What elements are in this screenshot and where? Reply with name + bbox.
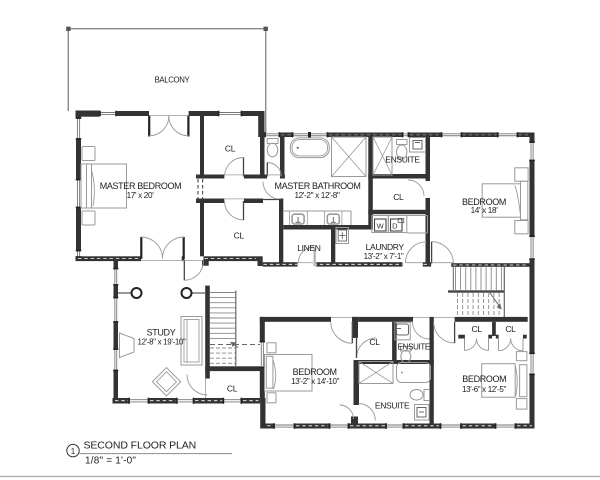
svg-text:12'-2" x 12'-8": 12'-2" x 12'-8" (294, 191, 340, 200)
svg-text:ENSUITE: ENSUITE (375, 401, 410, 411)
svg-text:ENSUITE: ENSUITE (398, 343, 430, 352)
svg-text:BEDROOM: BEDROOM (293, 367, 337, 377)
svg-text:CL: CL (225, 144, 236, 154)
svg-text:CL: CL (393, 192, 404, 202)
svg-text:17' x 20': 17' x 20' (127, 191, 155, 200)
svg-text:13'-2" x 14'-10": 13'-2" x 14'-10" (291, 377, 340, 386)
svg-text:SECOND FLOOR PLAN: SECOND FLOOR PLAN (84, 440, 197, 452)
svg-text:13'-6" x 12'-5": 13'-6" x 12'-5" (462, 385, 506, 394)
svg-text:CL: CL (234, 231, 245, 241)
svg-text:W: W (377, 222, 385, 231)
svg-text:LINEN: LINEN (297, 243, 320, 253)
svg-text:13'-2" x 7'-1": 13'-2" x 7'-1" (364, 252, 404, 261)
svg-text:MASTER BATHROOM: MASTER BATHROOM (274, 181, 360, 191)
svg-text:STUDY: STUDY (147, 328, 176, 338)
svg-text:CL: CL (472, 324, 483, 334)
svg-text:12'-8" x 19'-10": 12'-8" x 19'-10" (137, 338, 186, 347)
svg-text:1: 1 (71, 446, 76, 456)
svg-text:CL: CL (227, 384, 238, 394)
svg-text:CL: CL (369, 337, 380, 347)
svg-text:ENSUITE: ENSUITE (385, 155, 420, 165)
svg-text:MASTER BEDROOM: MASTER BEDROOM (100, 181, 182, 191)
svg-text:14' x 18': 14' x 18' (471, 206, 499, 215)
svg-text:BEDROOM: BEDROOM (462, 374, 506, 384)
svg-text:BALCONY: BALCONY (155, 76, 191, 85)
svg-text:1/8" = 1'-0": 1/8" = 1'-0" (85, 456, 136, 467)
svg-text:CL: CL (505, 324, 516, 334)
svg-text:D: D (392, 222, 398, 231)
svg-text:LAUNDRY: LAUNDRY (366, 242, 405, 252)
